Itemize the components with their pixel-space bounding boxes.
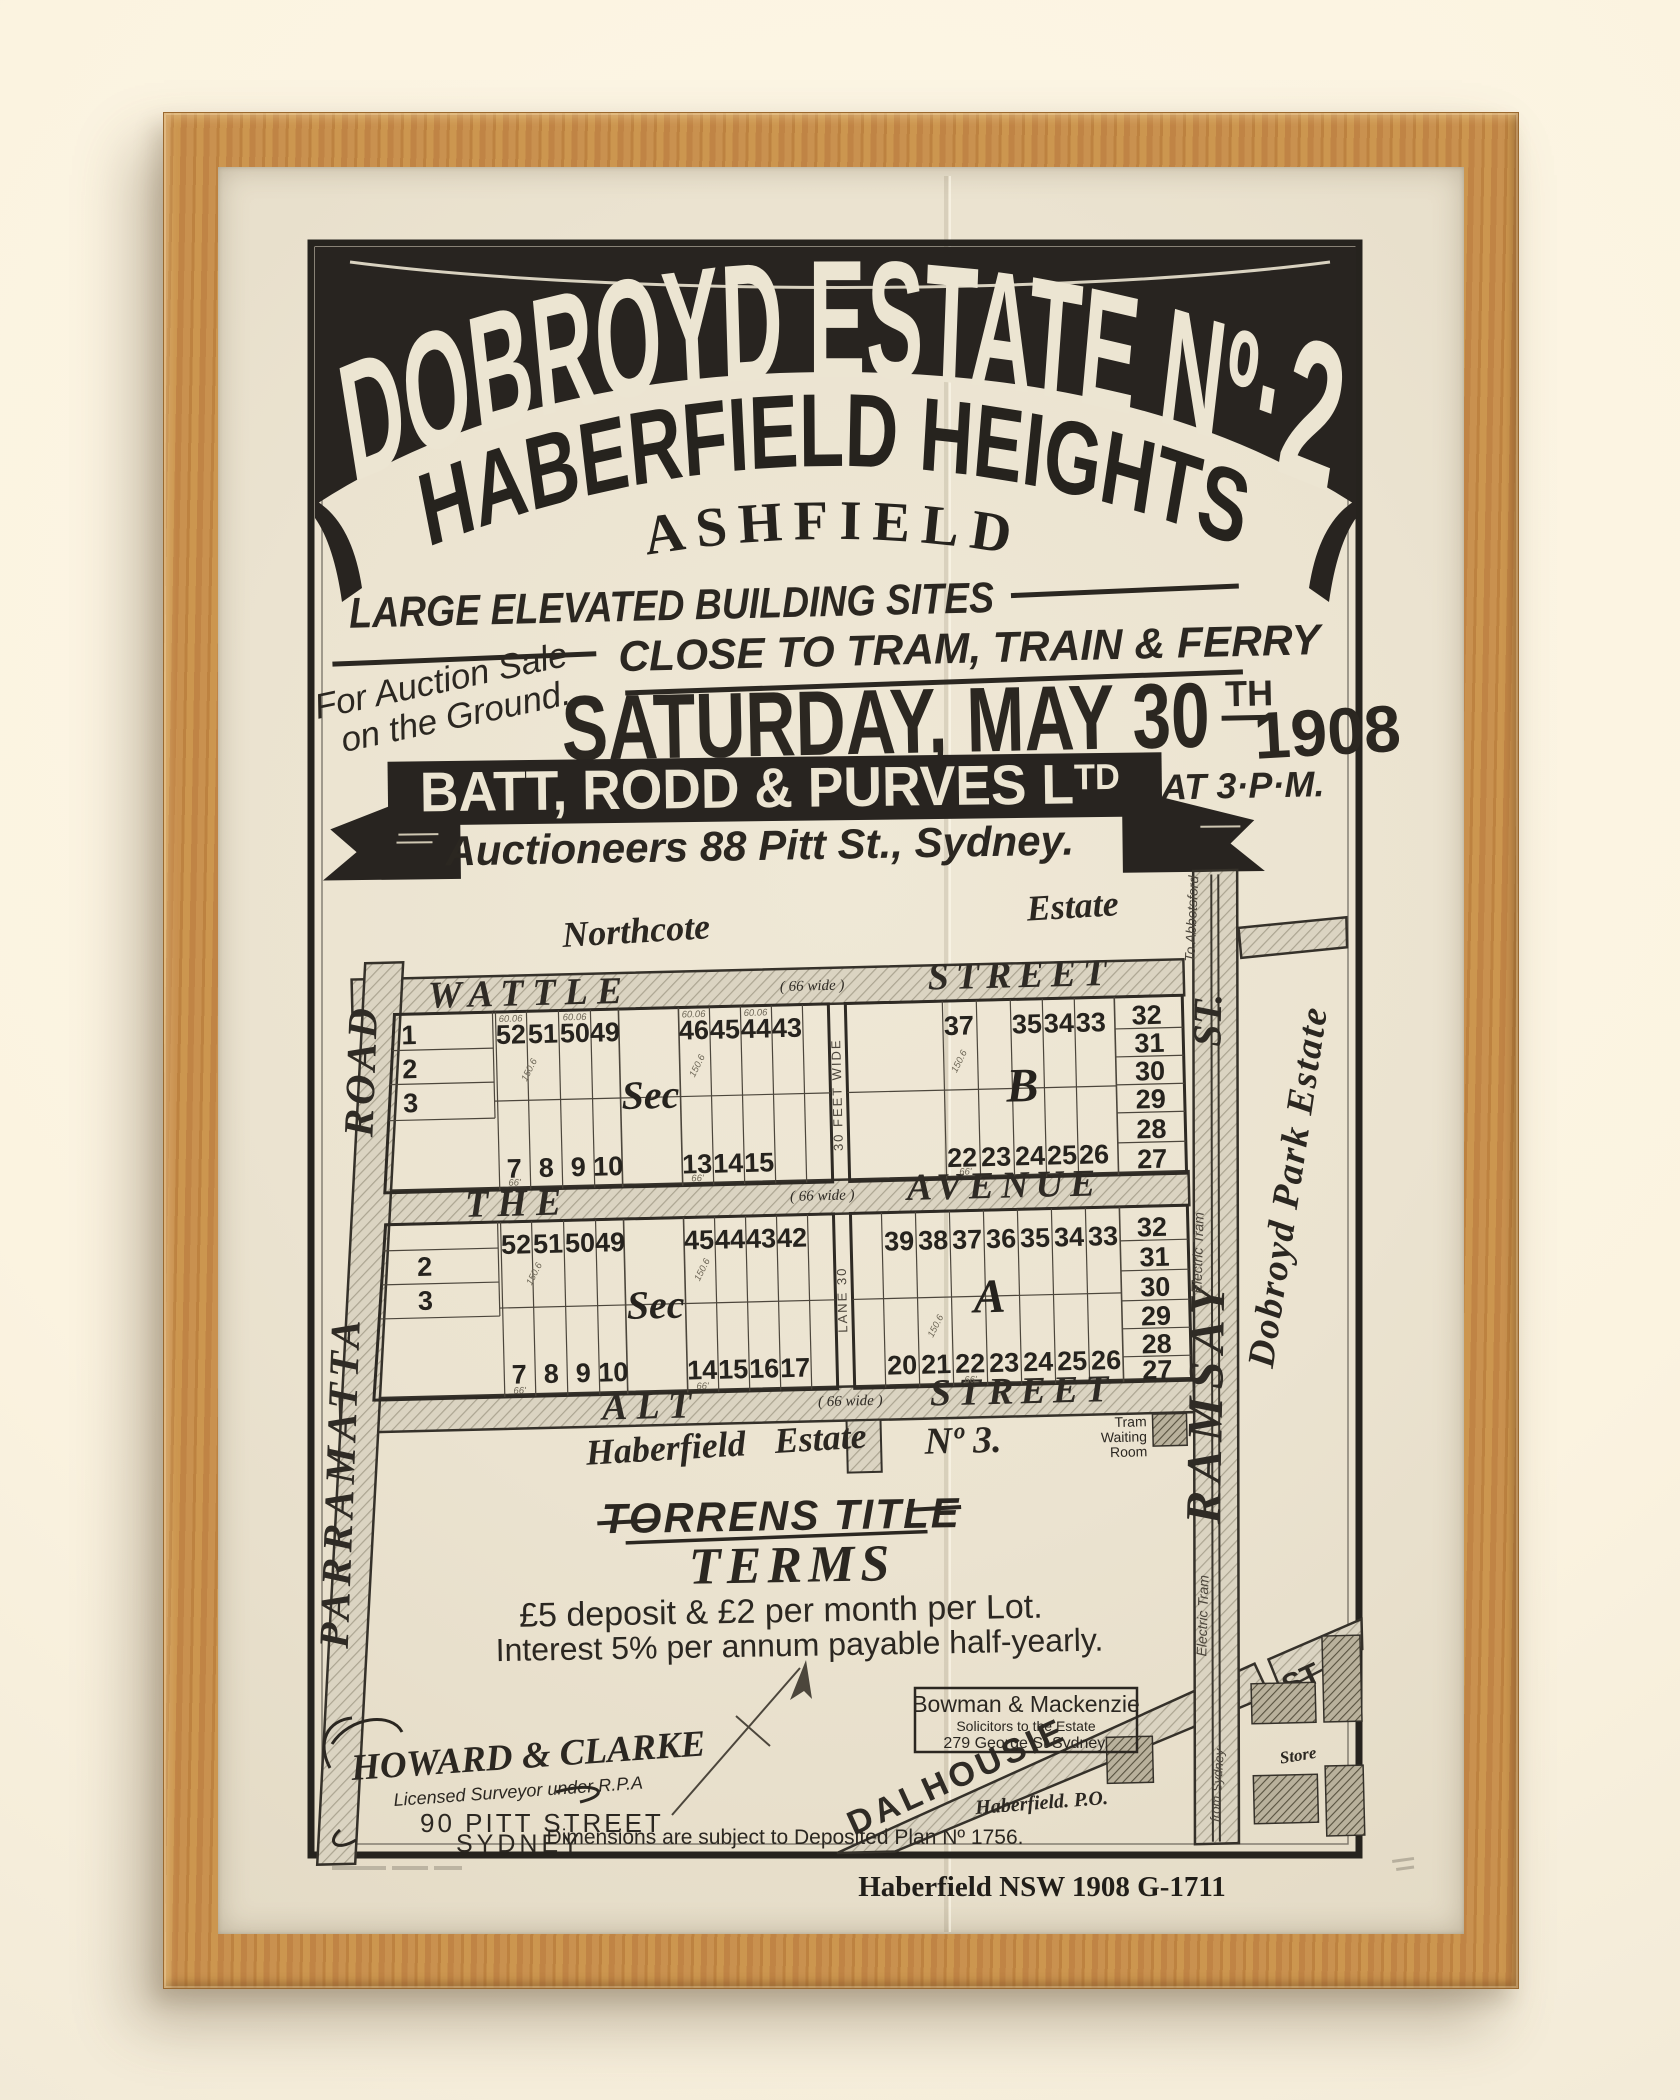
lot-number: 21 xyxy=(921,1349,952,1380)
lane-top-label: 30 FEET WIDE xyxy=(828,1038,846,1151)
engraver-signature xyxy=(1392,1857,1414,1871)
auction-time: AT 3·P·M. xyxy=(1160,763,1325,807)
lot-number: 27 xyxy=(1137,1144,1168,1175)
lot-number: 32 xyxy=(1131,1000,1162,1031)
tram-waiting-room-label-3: Room xyxy=(1110,1443,1148,1460)
alt-width-note: ( 66 wide ) xyxy=(818,1393,883,1411)
lot-number: 44 xyxy=(715,1224,746,1255)
lot-number: 29 xyxy=(1135,1084,1166,1115)
dim-mark: 66' xyxy=(691,1173,705,1184)
northcote-estate-label-1: Northcote xyxy=(560,906,711,955)
section-b-sec-label: Sec xyxy=(621,1072,680,1118)
lot-number: 28 xyxy=(1136,1114,1167,1145)
lot-number: 37 xyxy=(952,1224,983,1255)
lot-number: 32 xyxy=(1136,1212,1167,1243)
lot-number: 15 xyxy=(718,1354,749,1385)
building-block xyxy=(1253,1774,1318,1824)
lot-number: 26 xyxy=(1079,1139,1110,1170)
wattle-width-note: ( 66 wide ) xyxy=(780,978,845,996)
agent-name: BATT, RODD & PURVES LTD xyxy=(419,752,1120,824)
avenue-width-note: ( 66 wide ) xyxy=(790,1187,855,1205)
lot-number: 43 xyxy=(772,1013,803,1044)
lot-number: 37 xyxy=(944,1010,975,1041)
torrens-title: TORRENS TITLE xyxy=(601,1489,961,1542)
solicitors-name: Bowman & Mackenzie xyxy=(912,1691,1140,1717)
dim-mark: 150.6 xyxy=(949,1048,970,1075)
poster-locality: ASHFIELD xyxy=(639,490,1026,568)
dim-mark: 66' xyxy=(513,1385,527,1396)
building-block xyxy=(1106,1736,1153,1783)
lot-number: 49 xyxy=(590,1017,621,1048)
lot-number: 8 xyxy=(538,1153,554,1183)
lot-number: 9 xyxy=(575,1358,591,1388)
northcote-estate-label-2: Estate xyxy=(1024,883,1119,928)
parramatta-road-label-road: ROAD xyxy=(336,1003,387,1138)
dim-mark: 60.06 xyxy=(744,1007,769,1019)
lot-number: 24 xyxy=(1023,1347,1054,1378)
building-block xyxy=(1325,1765,1365,1836)
dim-mark: 150.6 xyxy=(687,1052,708,1079)
lot-number: 43 xyxy=(746,1223,777,1254)
lot-number: 51 xyxy=(533,1228,564,1259)
haberfield-estate-label-2: Estate xyxy=(772,1416,867,1461)
lot-number: 34 xyxy=(1054,1222,1085,1253)
dim-mark: 60.06 xyxy=(682,1009,707,1021)
plan-grid: WATTLE ( 66 wide ) STREET THE ( 66 wide … xyxy=(293,867,1369,1865)
lot-number: 51 xyxy=(528,1019,559,1050)
alt-street-label: ALT xyxy=(600,1384,701,1428)
lot-number: 26 xyxy=(1091,1345,1122,1376)
lot-number: 30 xyxy=(1140,1272,1171,1303)
lot-number: 23 xyxy=(989,1347,1020,1378)
electric-tram-lower-label: Electric Tram xyxy=(1193,1574,1211,1656)
tagline-dash-right xyxy=(1011,586,1239,596)
dim-mark: 66' xyxy=(696,1381,710,1392)
lot-number: 34 xyxy=(1043,1008,1074,1039)
dim-mark: 66' xyxy=(959,1166,973,1177)
lot-number: 16 xyxy=(749,1353,780,1384)
lot-number: 20 xyxy=(887,1350,918,1381)
lot-number: 36 xyxy=(986,1223,1017,1254)
lot-number: 33 xyxy=(1075,1007,1106,1038)
lot-number: 50 xyxy=(565,1228,596,1259)
lot-number: 38 xyxy=(918,1225,949,1256)
wattle-street-label: WATTLE xyxy=(427,970,631,1017)
tram-waiting-room-building xyxy=(1152,1413,1187,1446)
agent-subline: Auctioneers 88 Pitt St., Sydney. xyxy=(444,817,1074,875)
auction-note: For Auction Sale on the Ground. xyxy=(311,635,579,764)
dim-mark: 150.6 xyxy=(524,1260,545,1287)
ramsay-st-abbrev: ST. xyxy=(1184,993,1230,1047)
wattle-street-label-2: STREET xyxy=(927,952,1114,999)
surveyor-name: HOWARD & CLARKE xyxy=(349,1723,707,1789)
lot-number: 45 xyxy=(710,1014,741,1045)
poster-artwork: DOBROYD ESTATE Nº·2 HABERFIELD HEIGHTS A… xyxy=(0,0,1680,2100)
haberfield-estate-label-1: Haberfield xyxy=(584,1423,748,1473)
section-a-letter: A xyxy=(970,1270,1006,1324)
lot-number: 9 xyxy=(570,1152,586,1182)
plan-caption: Haberfield NSW 1908 G-1711 xyxy=(858,1871,1226,1903)
building-block xyxy=(1322,1635,1362,1722)
dim-mark: 60.06 xyxy=(499,1013,524,1025)
lot-number: 17 xyxy=(780,1352,811,1383)
lot-number: 25 xyxy=(1057,1346,1088,1377)
dim-mark: 150.6 xyxy=(519,1056,540,1083)
lot-number: 31 xyxy=(1134,1028,1165,1059)
dim-mark: 150.6 xyxy=(926,1312,947,1339)
dim-mark: 60.06 xyxy=(563,1012,588,1024)
lot-number: 24 xyxy=(1015,1141,1046,1172)
dobroyd-park-estate-label: Dobroyd Park Estate xyxy=(1240,1003,1336,1371)
lot-number: 29 xyxy=(1141,1301,1172,1332)
electric-tram-upper-label: Electric Tram xyxy=(1188,1211,1206,1293)
haberfield-estate-label-3: Nº 3. xyxy=(923,1419,1002,1463)
building-block xyxy=(1251,1682,1316,1724)
lot-number: 25 xyxy=(1047,1140,1078,1171)
section-b-letter: B xyxy=(1005,1059,1039,1113)
lot-number: 39 xyxy=(884,1226,915,1257)
solicitors-role: Solicitors to the Estate xyxy=(956,1718,1096,1734)
date-year: 1908 xyxy=(1252,691,1403,773)
ramsay-street-label: RAMSAY xyxy=(1175,1276,1236,1526)
lot-number: 27 xyxy=(1142,1355,1173,1386)
lot-number: 8 xyxy=(543,1359,559,1389)
dim-mark: 66' xyxy=(964,1374,978,1385)
lot-number: 35 xyxy=(1011,1009,1042,1040)
wattle-street-east-stub xyxy=(1238,917,1347,958)
torrens-terms: TORRENS TITLE TERMS £5 deposit & £2 per … xyxy=(493,1487,1104,1669)
lot-number: 45 xyxy=(684,1225,715,1256)
printer-imprint xyxy=(332,1866,462,1870)
lot-number: 2 xyxy=(402,1054,418,1084)
lane-bottom-label: LANE 30 xyxy=(834,1266,851,1332)
lot-number: 2 xyxy=(417,1252,433,1282)
lot-number: 1 xyxy=(401,1020,417,1050)
lot-number: 31 xyxy=(1139,1242,1170,1273)
dimensions-note: Dimensions are subject to Deposited Plan… xyxy=(547,1826,1024,1849)
lot-number: 10 xyxy=(598,1357,629,1388)
store-label: Store xyxy=(1278,1743,1318,1768)
section-a-sec-label: Sec xyxy=(626,1282,685,1328)
lot-number: 23 xyxy=(981,1142,1012,1173)
lot-number: 3 xyxy=(403,1088,419,1118)
terms-title: TERMS xyxy=(688,1535,895,1596)
lot-number: 35 xyxy=(1020,1223,1051,1254)
lot-number: 14 xyxy=(713,1148,744,1179)
lot-number: 42 xyxy=(777,1223,808,1254)
dim-mark: 150.6 xyxy=(692,1256,713,1283)
lot-number: 15 xyxy=(744,1147,775,1178)
lot-number: 10 xyxy=(593,1151,624,1182)
lot-number: 52 xyxy=(501,1229,532,1260)
dim-mark: 66' xyxy=(508,1177,522,1188)
lot-number: 30 xyxy=(1135,1056,1166,1087)
lot-number: 33 xyxy=(1088,1221,1119,1252)
solicitors-address: 279 George St Sydney. xyxy=(943,1735,1108,1752)
lot-number: 3 xyxy=(418,1286,434,1316)
lot-number: 49 xyxy=(595,1227,626,1258)
